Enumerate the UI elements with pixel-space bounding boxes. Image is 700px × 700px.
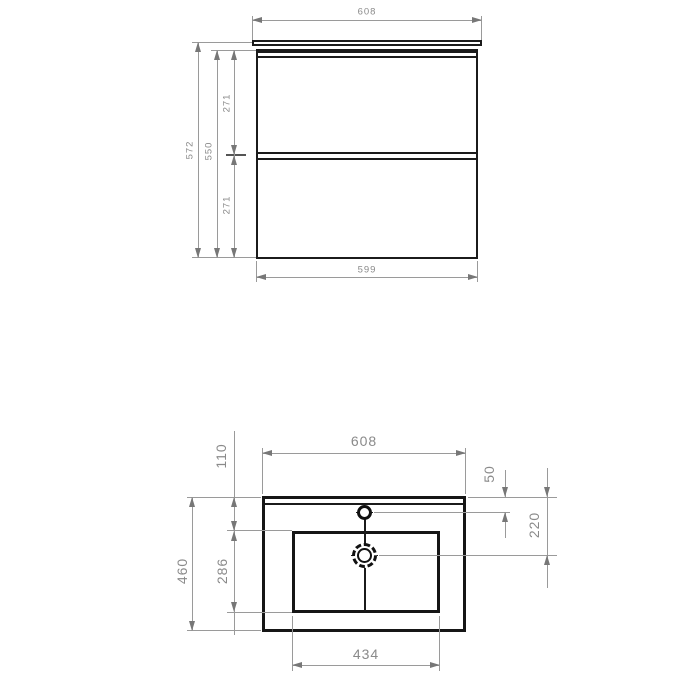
countertop — [252, 40, 482, 46]
dim-line-depth-overall — [192, 497, 193, 631]
dim-line-drawer-upper — [234, 50, 235, 155]
dim-label-height-overall: 572 — [185, 141, 195, 160]
ext-line-bowl-bottom — [227, 612, 292, 613]
arrow-right-icon — [468, 274, 478, 280]
dim-line-width-top — [252, 20, 482, 21]
drawer-divider-upper-line — [258, 152, 476, 154]
dim-line-basin-width — [262, 453, 466, 454]
dim-label-width-body: 599 — [358, 265, 377, 275]
arrow-down-icon — [195, 248, 201, 258]
arrow-down-icon — [231, 521, 237, 531]
arrow-down-icon — [214, 248, 220, 258]
arrow-left-icon — [292, 662, 302, 668]
arrow-left-icon — [256, 274, 266, 280]
arrow-down-icon — [544, 487, 550, 497]
dim-line-drain-offset — [547, 468, 548, 588]
drain-hole — [357, 548, 372, 563]
arrow-up-icon — [189, 497, 195, 507]
arrow-up-icon — [231, 155, 237, 165]
arrow-down-icon — [231, 145, 237, 155]
arrow-down-icon — [189, 621, 195, 631]
dim-line-height-overall — [198, 42, 199, 258]
dim-label-depth-overall: 460 — [175, 558, 189, 584]
technical-drawing-canvas: 608 572 550 271 271 599 — [0, 0, 700, 700]
arrow-up-icon — [214, 50, 220, 60]
arrow-left-icon — [252, 17, 262, 23]
drawer-divider-lower-line — [258, 158, 476, 160]
arrow-up-icon — [231, 497, 237, 507]
arrow-up-icon — [195, 42, 201, 52]
arrow-right-icon — [456, 450, 466, 456]
arrow-right-icon — [430, 662, 440, 668]
arrow-up-icon — [544, 555, 550, 565]
dim-label-width-top: 608 — [358, 7, 377, 17]
leader-line-drain — [379, 555, 557, 556]
arrow-down-icon — [231, 602, 237, 612]
arrow-left-icon — [262, 450, 272, 456]
arrow-right-icon — [472, 17, 482, 23]
arrow-up-icon — [231, 531, 237, 541]
dim-label-drawer-lower: 271 — [222, 196, 232, 215]
arrow-up-icon — [502, 512, 508, 522]
ext-line — [192, 42, 252, 43]
dim-line-bowl-width — [292, 665, 440, 666]
dim-line-basin-depth — [234, 531, 235, 635]
dim-label-drain-offset: 220 — [527, 512, 541, 538]
arrow-down-icon — [502, 487, 508, 497]
dim-line-height-front — [217, 50, 218, 258]
ext-line-rim-top — [187, 497, 261, 498]
dim-label-basin-depth: 286 — [215, 558, 229, 584]
dim-label-tap-offset: 50 — [482, 465, 496, 483]
ext-line-rim-top-right — [468, 497, 557, 498]
arrow-down-icon — [231, 248, 237, 258]
dim-label-basin-width: 608 — [351, 434, 377, 448]
dim-label-height-front: 550 — [204, 142, 214, 161]
cabinet-body — [256, 51, 478, 259]
dim-label-bowl-width: 434 — [353, 647, 379, 661]
dim-line-drawer-lower — [234, 155, 235, 258]
tap-hole — [357, 505, 372, 520]
leader-line-tap — [374, 512, 510, 513]
arrow-up-icon — [231, 50, 237, 60]
dim-label-drawer-upper: 271 — [222, 94, 232, 113]
ext-line-rim-bottom — [187, 630, 261, 631]
dim-line-width-body — [256, 277, 478, 278]
dim-line-rim-to-basin — [234, 431, 235, 531]
dim-label-rim-to-basin: 110 — [214, 443, 228, 468]
drawer-upper-top-line — [258, 56, 476, 58]
ext-line — [192, 257, 256, 258]
